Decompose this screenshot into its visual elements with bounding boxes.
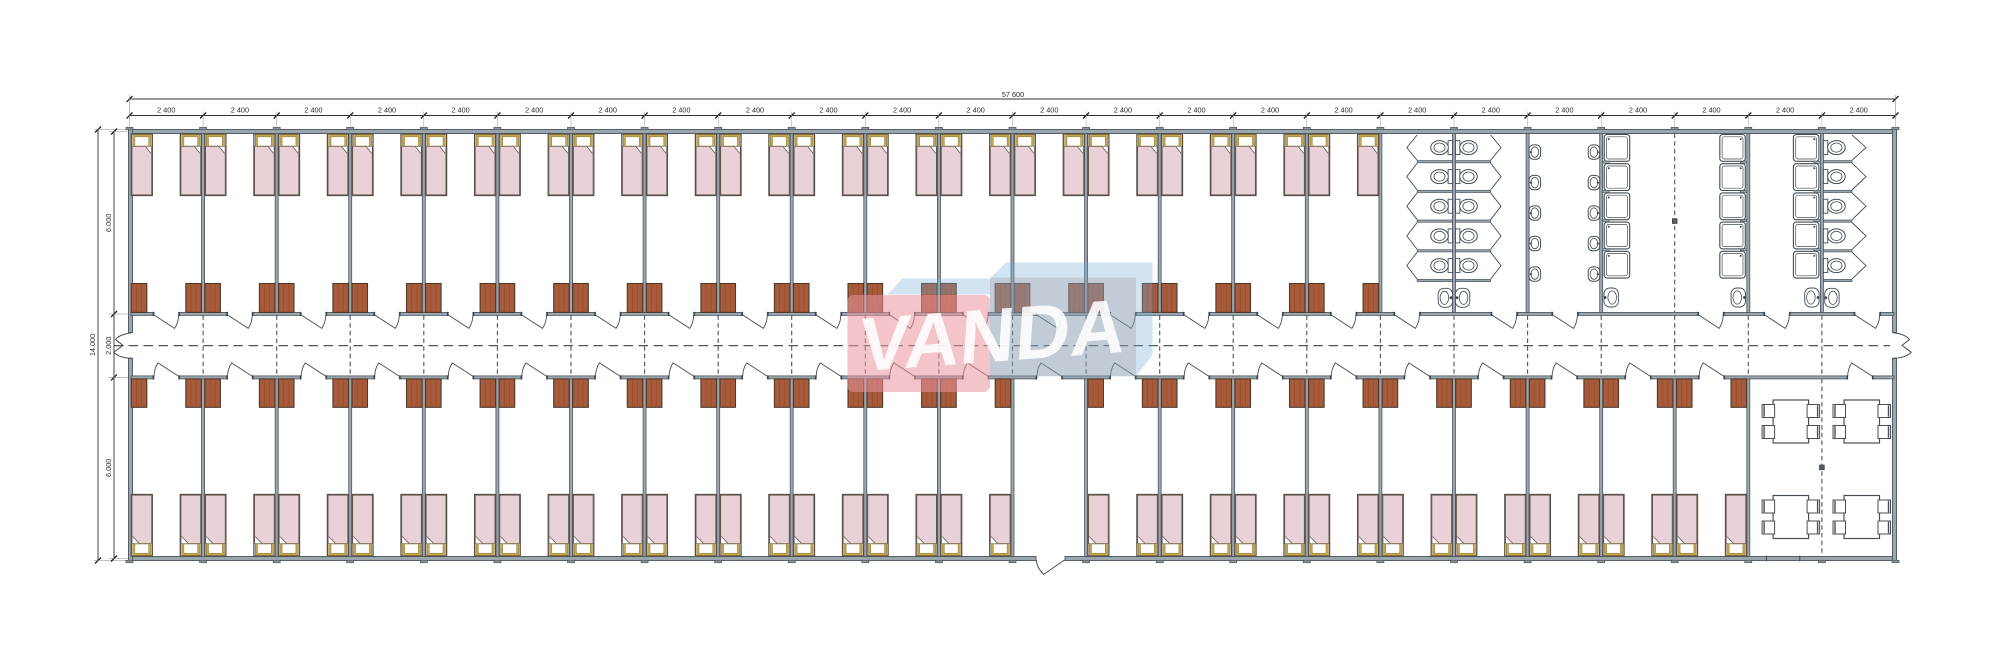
svg-text:2 400: 2 400 [451,106,469,115]
svg-text:2 400: 2 400 [1555,106,1573,115]
svg-text:2 400: 2 400 [967,106,985,115]
svg-text:2 400: 2 400 [1408,106,1426,115]
svg-text:2 400: 2 400 [672,106,690,115]
svg-text:57 600: 57 600 [1002,90,1024,99]
svg-text:6.000: 6.000 [104,459,113,477]
svg-text:2 400: 2 400 [1776,106,1794,115]
svg-text:2 400: 2 400 [1114,106,1132,115]
svg-text:2 400: 2 400 [378,106,396,115]
svg-text:2 400: 2 400 [746,106,764,115]
svg-text:14.000: 14.000 [88,334,97,356]
svg-text:2 400: 2 400 [157,106,175,115]
svg-text:2 400: 2 400 [1334,106,1352,115]
svg-text:2 400: 2 400 [525,106,543,115]
svg-text:2 400: 2 400 [819,106,837,115]
svg-text:2 400: 2 400 [304,106,322,115]
svg-text:2 400: 2 400 [1040,106,1058,115]
svg-text:2 400: 2 400 [1261,106,1279,115]
svg-text:2 400: 2 400 [1629,106,1647,115]
svg-text:2 400: 2 400 [893,106,911,115]
svg-text:2 400: 2 400 [1482,106,1500,115]
svg-text:2 400: 2 400 [1702,106,1720,115]
svg-text:2 400: 2 400 [1850,106,1868,115]
svg-text:2 400: 2 400 [1187,106,1205,115]
svg-text:2 400: 2 400 [599,106,617,115]
svg-text:2 400: 2 400 [231,106,249,115]
svg-text:2.000: 2.000 [104,337,113,355]
svg-text:6.000: 6.000 [104,214,113,232]
